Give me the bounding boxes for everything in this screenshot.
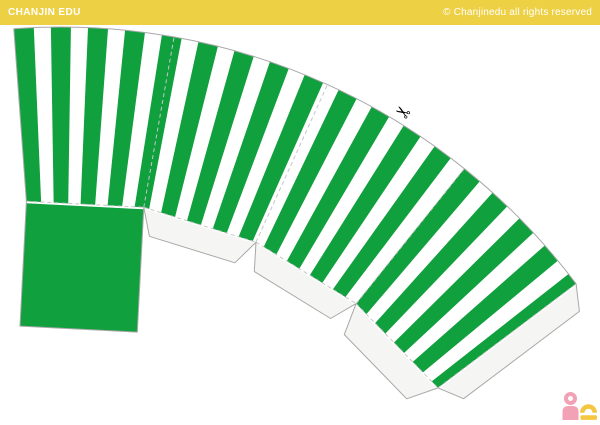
logo-arch <box>580 404 597 413</box>
publisher-logo <box>553 389 599 425</box>
logo-person-body <box>563 406 579 420</box>
papercraft-template: ✂ <box>0 0 600 425</box>
base-square-flap <box>20 203 144 332</box>
logo-bar <box>581 415 598 420</box>
logo-person-head <box>566 394 575 403</box>
stripe <box>51 15 71 225</box>
header-bar: CHANJIN EDU © Chanjinedu all rights rese… <box>0 0 600 25</box>
brand-title: CHANJIN EDU <box>8 7 81 18</box>
copyright-text: © Chanjinedu all rights reserved <box>443 7 592 18</box>
